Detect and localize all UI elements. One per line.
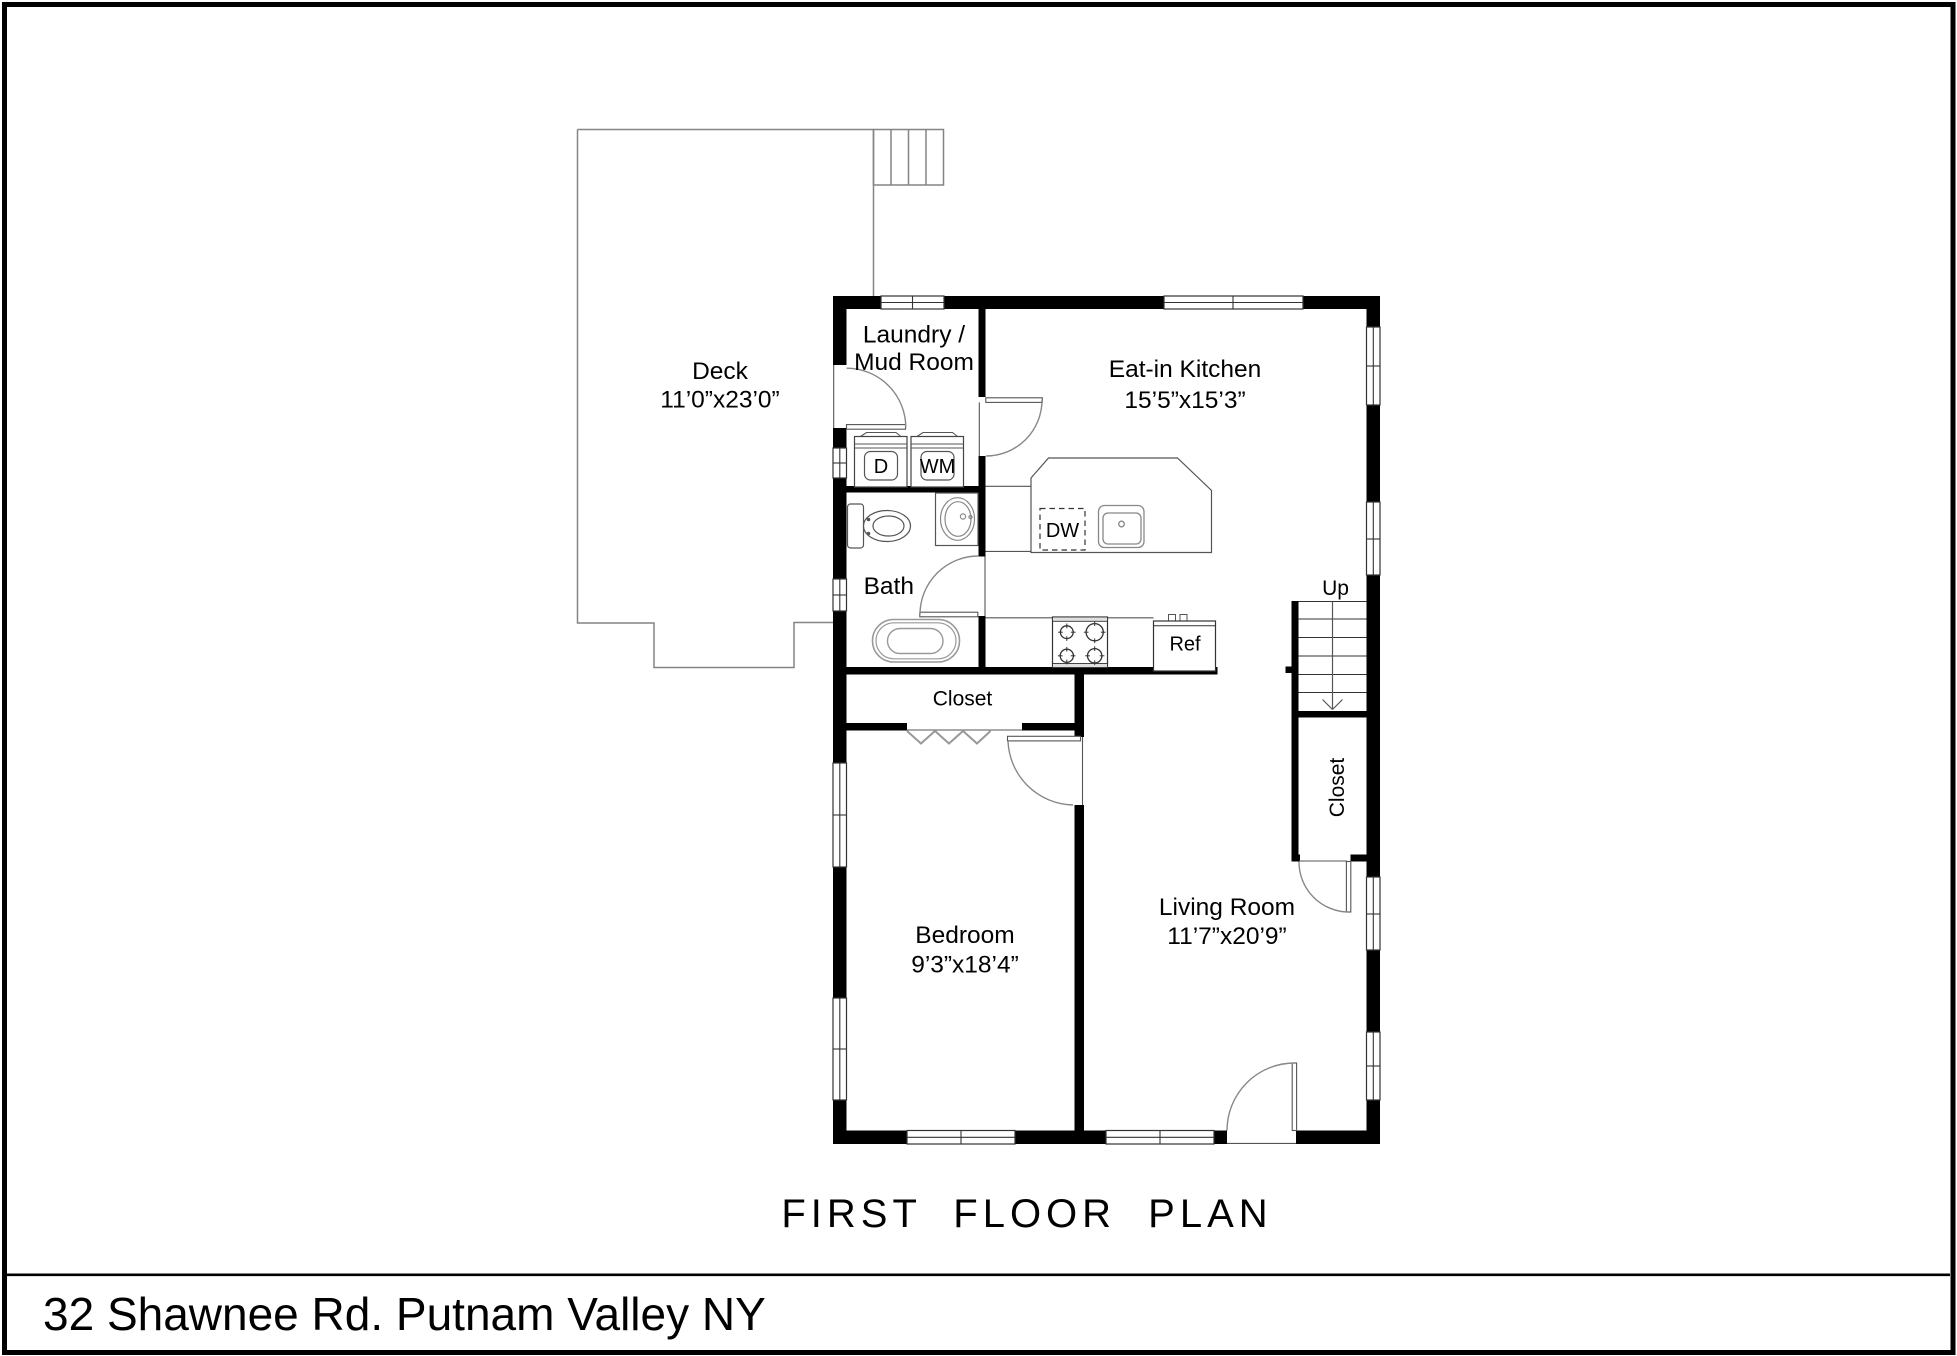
svg-text:Mud Room: Mud Room: [854, 349, 974, 376]
svg-text:WM: WM: [920, 456, 956, 478]
svg-text:11’7”x20’9”: 11’7”x20’9”: [1167, 923, 1286, 950]
svg-text:Closet: Closet: [933, 687, 993, 710]
svg-text:Bedroom: Bedroom: [915, 922, 1014, 949]
svg-text:Ref: Ref: [1169, 634, 1201, 656]
svg-text:Living Room: Living Room: [1159, 894, 1295, 921]
svg-text:32 Shawnee Rd. Putnam Valley N: 32 Shawnee Rd. Putnam Valley NY: [43, 1288, 766, 1340]
svg-text:Eat-in Kitchen: Eat-in Kitchen: [1109, 356, 1262, 383]
svg-text:15’5”x15’3”: 15’5”x15’3”: [1124, 387, 1245, 414]
svg-text:DW: DW: [1046, 520, 1079, 542]
svg-text:Up: Up: [1322, 577, 1349, 600]
svg-text:Laundry /: Laundry /: [863, 322, 965, 349]
svg-text:FIRST FLOOR PLAN: FIRST FLOOR PLAN: [781, 1192, 1272, 1236]
svg-text:Bath: Bath: [864, 573, 914, 600]
svg-text:Deck: Deck: [692, 358, 749, 385]
svg-text:Closet: Closet: [1326, 758, 1349, 818]
svg-text:D: D: [874, 456, 888, 478]
svg-text:11’0”x23’0”: 11’0”x23’0”: [660, 387, 779, 414]
svg-text:9’3”x18’4”: 9’3”x18’4”: [911, 951, 1019, 978]
